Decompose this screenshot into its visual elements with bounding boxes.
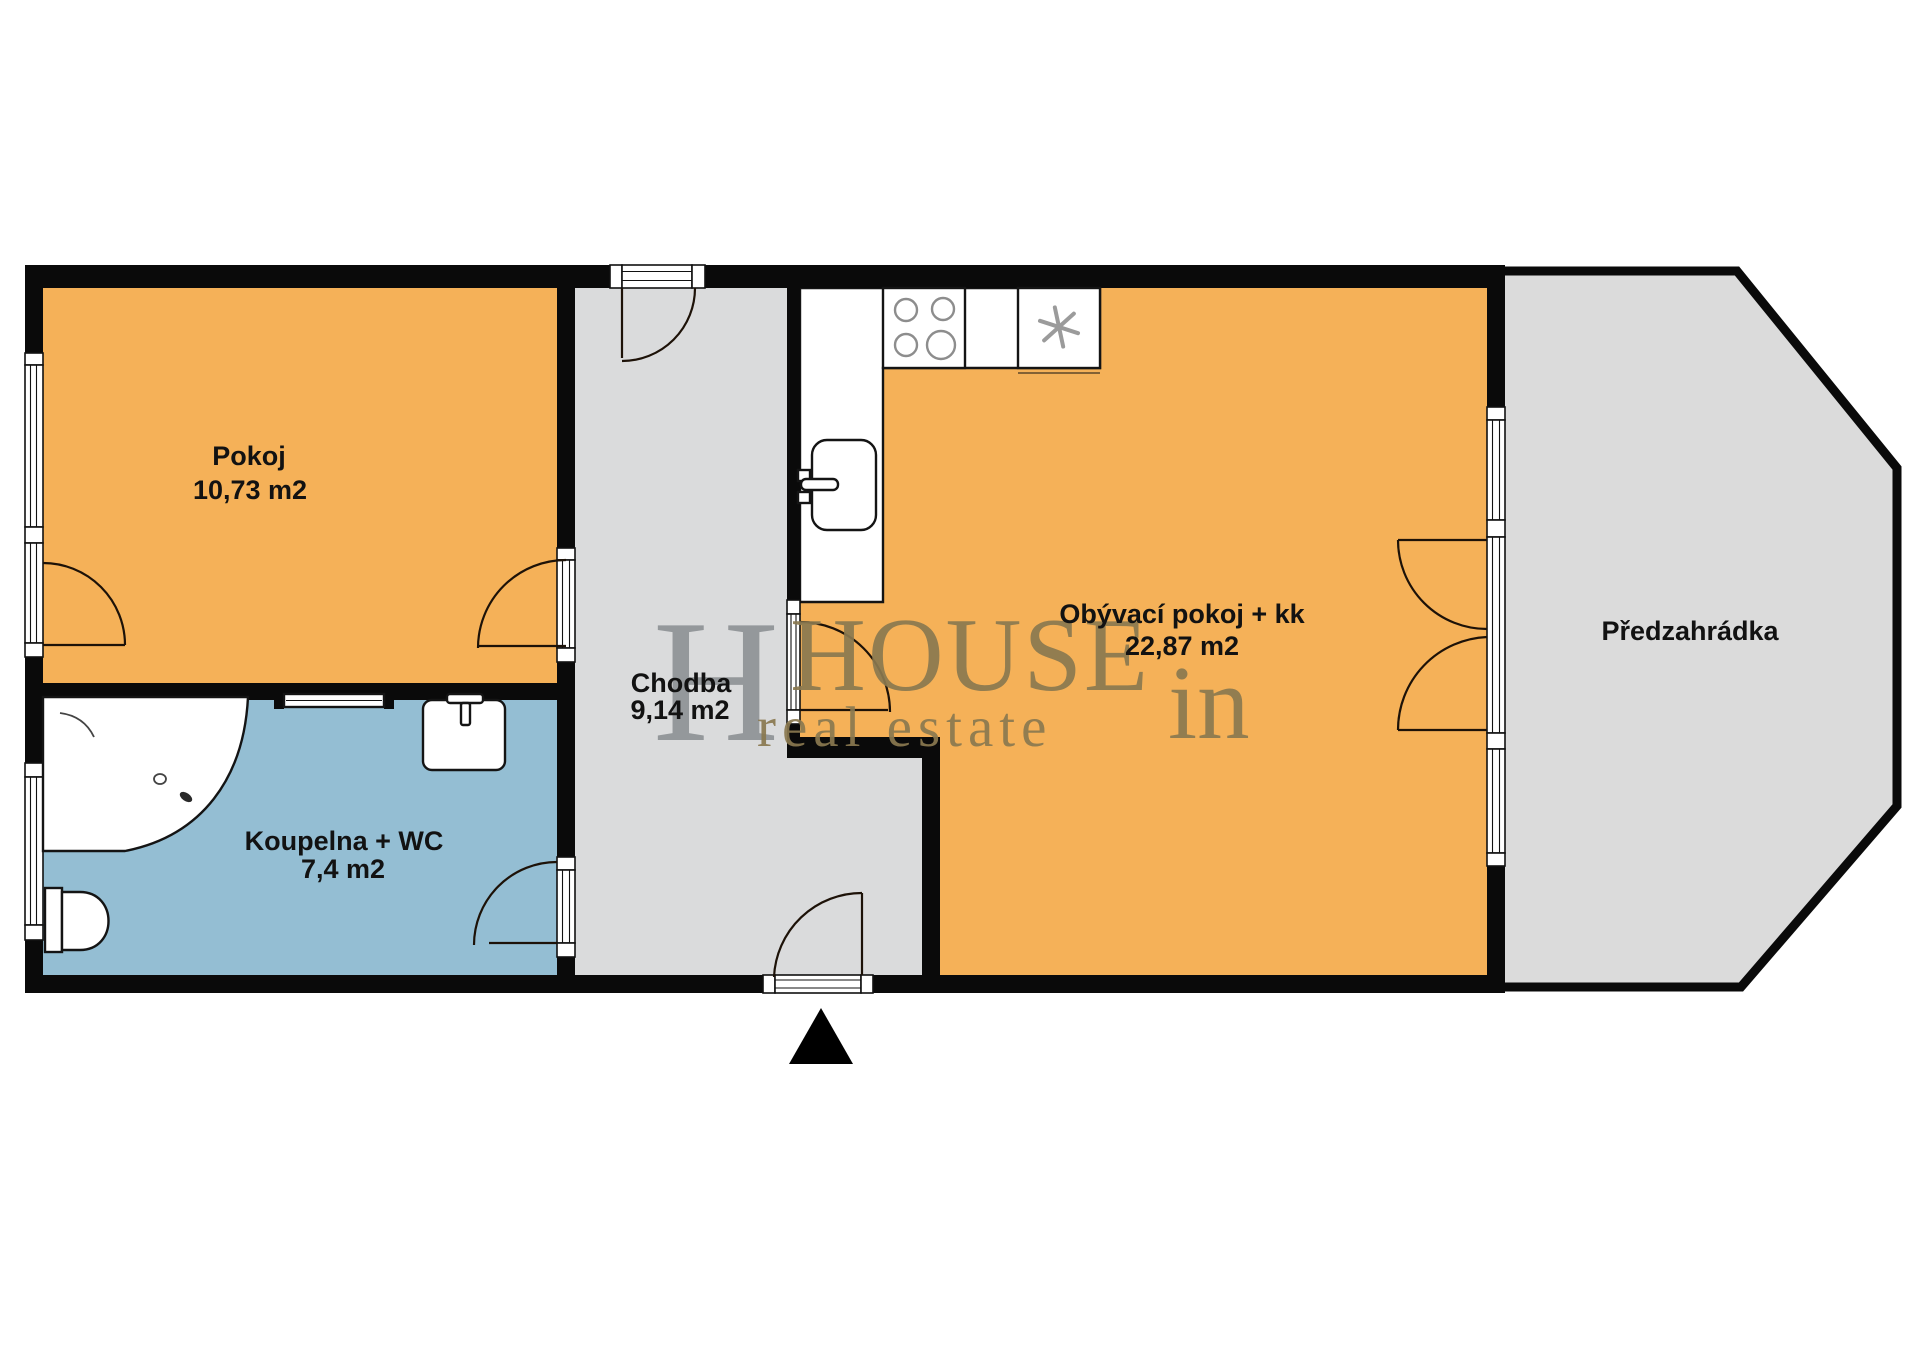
label-chodba-area: 9,14 m2 xyxy=(630,695,729,725)
window-obyvaci-lower xyxy=(1487,749,1505,866)
label-pokoj-area: 10,73 m2 xyxy=(193,475,307,505)
radiator xyxy=(274,692,394,709)
label-obyvaci-area: 22,87 m2 xyxy=(1125,631,1239,661)
window-obyvaci-upper xyxy=(1487,407,1505,537)
label-obyvaci-name: Obývací pokoj + kk xyxy=(1059,599,1305,629)
label-chodba-name: Chodba xyxy=(631,668,732,698)
door-frame-entry-top xyxy=(610,265,705,288)
door-frame-pokoj-balcony xyxy=(25,543,43,657)
bathroom-sink xyxy=(423,694,505,770)
fridge xyxy=(1018,288,1100,373)
stove xyxy=(883,288,965,368)
floor-plan-canvas: H HOUSE in real estate Pokoj 10,73 m2 Ko… xyxy=(0,0,1920,1358)
label-pokoj-name: Pokoj xyxy=(212,441,286,471)
label-koupelna-area: 7,4 m2 xyxy=(301,854,385,884)
label-predzahradka-name: Předzahrádka xyxy=(1601,616,1779,646)
window-koupelna-left xyxy=(25,763,43,940)
door-frame-koupelna xyxy=(557,857,575,957)
label-koupelna-name: Koupelna + WC xyxy=(245,826,444,856)
watermark-tagline: real estate xyxy=(757,696,1052,759)
entrance-arrow xyxy=(789,1008,853,1064)
door-frame-garden xyxy=(1487,537,1505,749)
toilet xyxy=(45,888,109,952)
floor-plan: H HOUSE in real estate Pokoj 10,73 m2 Ko… xyxy=(0,0,1920,1358)
watermark-brand-suffix: in xyxy=(1168,644,1250,761)
window-pokoj-left xyxy=(25,353,43,543)
door-frame-entry-bottom xyxy=(763,975,873,993)
